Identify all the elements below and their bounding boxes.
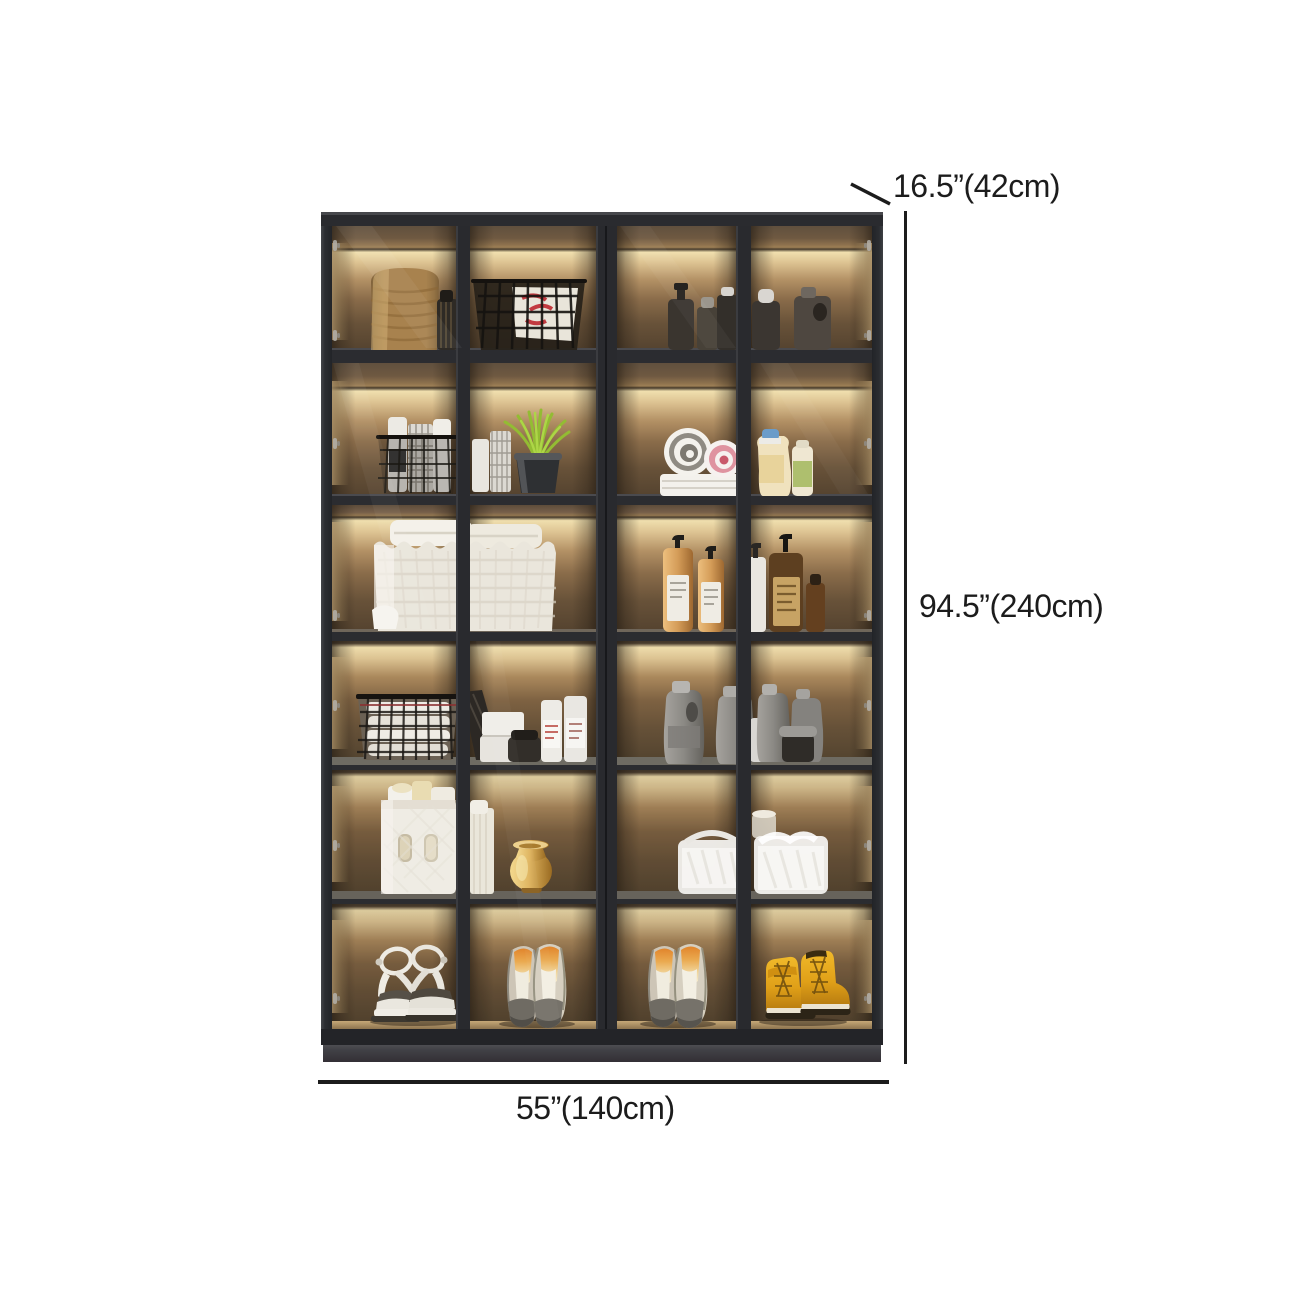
svg-text:55”(140cm): 55”(140cm) <box>516 1090 675 1126</box>
svg-text:16.5”(42cm): 16.5”(42cm) <box>893 168 1060 204</box>
svg-text:94.5”(240cm): 94.5”(240cm) <box>919 588 1103 624</box>
